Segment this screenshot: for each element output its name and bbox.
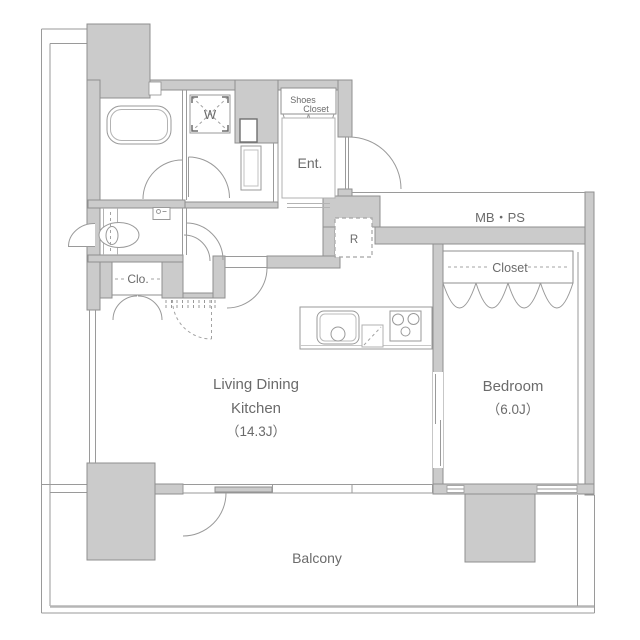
bathroom bbox=[107, 106, 171, 144]
floor-plan-page: Living Dining Kitchen （14.3J） Bedroom （6… bbox=[0, 0, 640, 640]
bedroom-label: Bedroom bbox=[483, 378, 544, 395]
wall-niche bbox=[149, 82, 161, 95]
shoes-closet-label-line2: Closet bbox=[303, 104, 329, 114]
ldk-label-line2: Kitchen bbox=[231, 400, 281, 417]
ldk-area-label: （14.3J） bbox=[226, 424, 286, 439]
washing-machine-label: W bbox=[204, 107, 217, 122]
balcony-label: Balcony bbox=[292, 550, 342, 566]
toilet-remote bbox=[153, 208, 170, 220]
sliding-door-gap bbox=[433, 372, 443, 468]
bathtub bbox=[107, 106, 171, 144]
toilet-bowl bbox=[99, 223, 139, 248]
bedroom-area-label: （6.0J） bbox=[487, 402, 540, 417]
washbasin bbox=[240, 119, 257, 142]
floor-plan-svg: Living Dining Kitchen （14.3J） Bedroom （6… bbox=[0, 0, 640, 640]
refrigerator-label: R bbox=[350, 234, 358, 246]
mbps-label: MB・PS bbox=[475, 210, 525, 225]
entrance-label: Ent. bbox=[298, 155, 323, 171]
bedroom-closet-label: Closet bbox=[492, 261, 528, 275]
ldk-label-line1: Living Dining bbox=[213, 376, 299, 393]
hall-closet-label: Clo. bbox=[127, 272, 148, 286]
kitchen bbox=[300, 307, 432, 349]
